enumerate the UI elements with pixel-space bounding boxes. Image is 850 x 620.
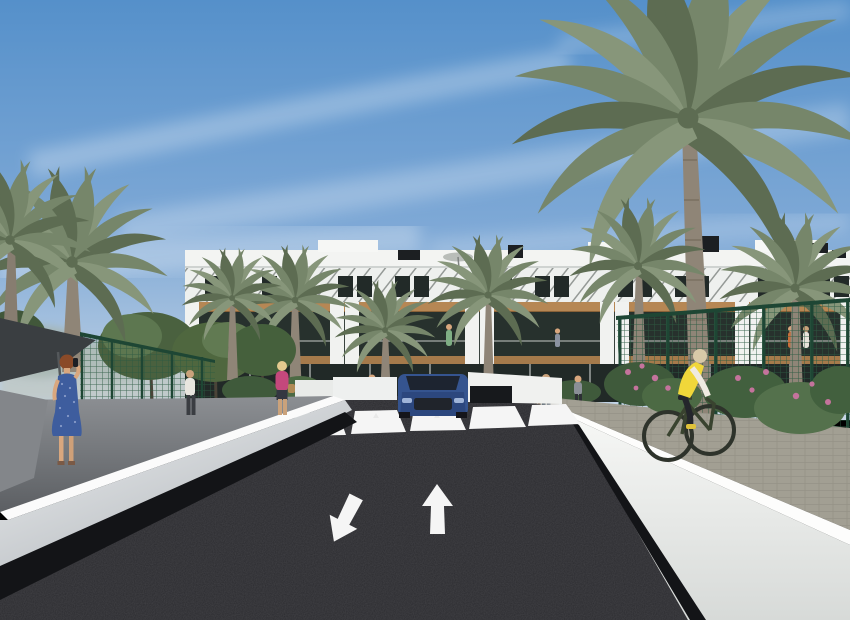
phone (73, 358, 78, 367)
car-grille (414, 398, 452, 410)
render-image (0, 0, 850, 620)
car-headlight-left (402, 398, 412, 403)
handbag (288, 384, 295, 393)
scene-svg (0, 0, 850, 620)
car (398, 374, 468, 418)
ramp-wall-left (333, 377, 397, 400)
car-windshield (406, 376, 460, 390)
cyclist-head (693, 349, 707, 363)
red-hair (60, 355, 75, 370)
yellow-shoe (686, 424, 696, 429)
ramp-opening (470, 386, 512, 403)
car-headlight-right (454, 398, 464, 403)
